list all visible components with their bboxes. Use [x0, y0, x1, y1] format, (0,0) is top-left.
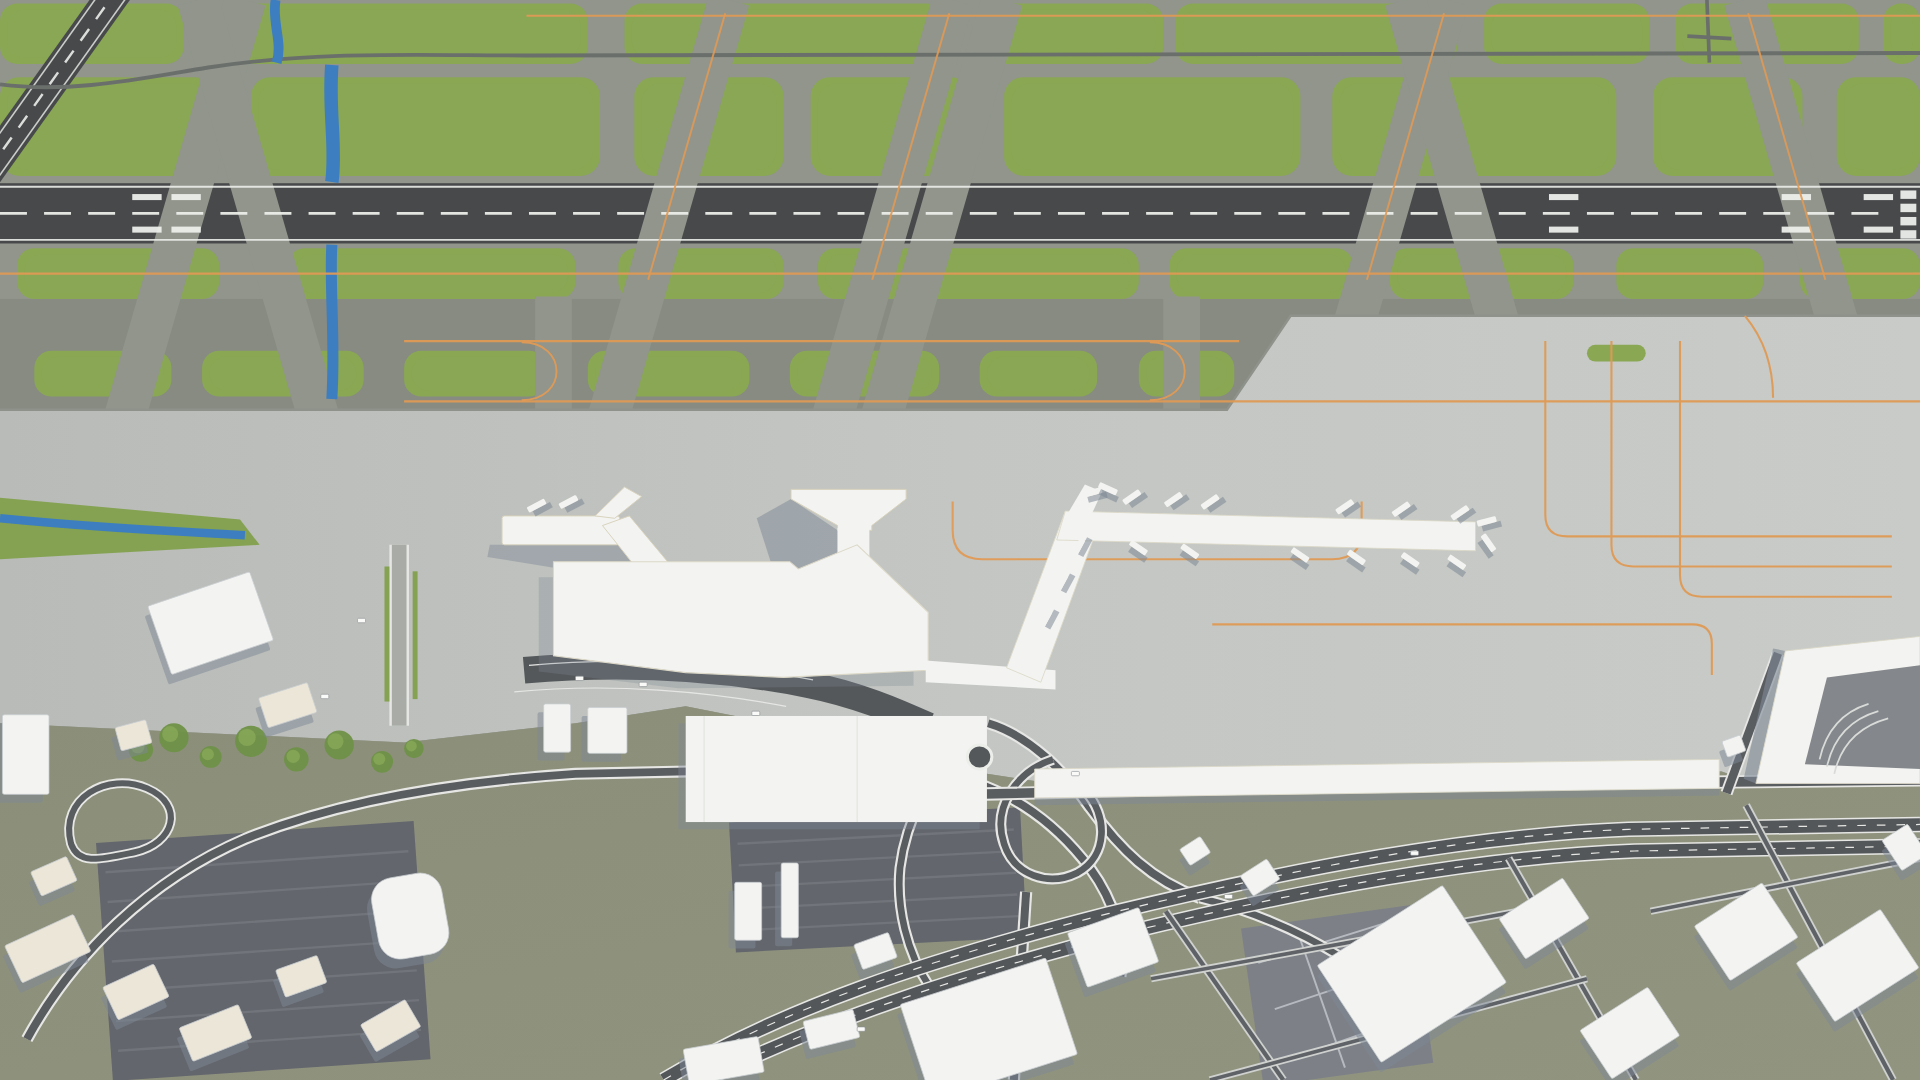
touchdown-marking [1549, 194, 1578, 200]
vehicle [321, 694, 329, 698]
vehicle [358, 618, 366, 622]
airport-scene[interactable] [0, 0, 1920, 1080]
touchdown-marking [171, 194, 200, 200]
threshold-marking [1900, 230, 1916, 238]
threshold-marking [1900, 190, 1916, 198]
building [588, 708, 627, 754]
touchdown-marking [1864, 227, 1893, 233]
vehicle [752, 711, 760, 715]
main-terminal-building [553, 545, 928, 678]
vehicle [1224, 894, 1232, 898]
threshold-marking [1900, 204, 1916, 212]
vehicle [639, 682, 647, 686]
touchdown-marking [171, 227, 200, 233]
grass-texture [1844, 83, 1913, 170]
building [2, 715, 49, 795]
grass-texture [632, 10, 936, 58]
grass-texture [1011, 83, 1293, 170]
apron-grass-patch [1587, 345, 1646, 362]
tree-highlight [406, 741, 417, 752]
building [735, 882, 762, 940]
vehicle [1071, 771, 1079, 775]
grass-texture [1491, 10, 1642, 58]
grass-texture [1891, 10, 1913, 58]
vehicle [576, 676, 584, 680]
touchdown-marking [132, 227, 161, 233]
grass-texture [1340, 83, 1609, 170]
grass-texture [258, 83, 592, 170]
touchdown-marking [1549, 227, 1578, 233]
grass-texture [987, 357, 1090, 391]
vehicle [1411, 851, 1419, 855]
tree-highlight [287, 750, 300, 763]
threshold-marking [1900, 217, 1916, 225]
touchdown-marking [1782, 227, 1811, 233]
grass-texture [411, 357, 538, 391]
tree-highlight [238, 729, 256, 746]
spiral-ramp [967, 745, 991, 769]
parking-garage [678, 716, 991, 829]
airport-3d-model-viewport[interactable] [0, 0, 1920, 1080]
building [781, 863, 798, 938]
tree-highlight [327, 733, 343, 749]
tree-highlight [373, 753, 385, 765]
tree-highlight [202, 748, 214, 760]
building [544, 704, 571, 752]
vehicle [857, 1027, 865, 1031]
touchdown-marking [1782, 194, 1811, 200]
touchdown-marking [132, 194, 161, 200]
tree-highlight [162, 726, 178, 742]
touchdown-marking [1864, 194, 1893, 200]
